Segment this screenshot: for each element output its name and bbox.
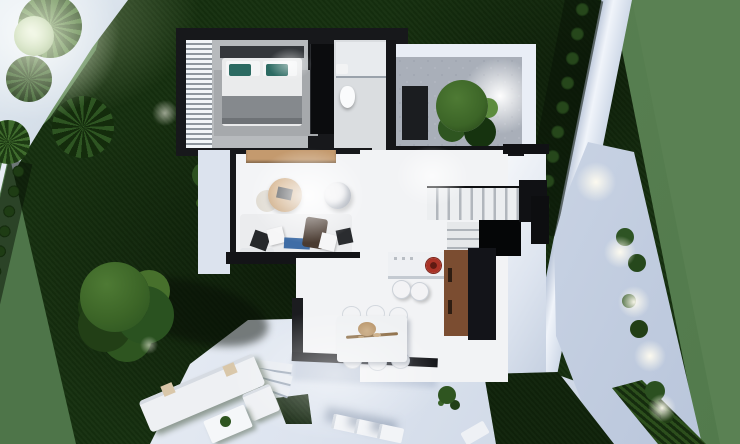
cabinet-handle	[448, 300, 452, 314]
sofa-pillow-black	[336, 228, 354, 246]
cabinet-handle	[448, 268, 452, 282]
bed-headboard	[220, 46, 304, 58]
stairs-upper-flight	[427, 186, 519, 220]
palm-tree-2	[6, 56, 52, 102]
wall-segment-north	[503, 144, 549, 154]
kitchen-tall-cabinet	[444, 250, 468, 336]
toilet	[340, 86, 355, 108]
bed-blanket-edge	[222, 118, 302, 124]
big-tree	[80, 262, 150, 332]
table-centerpiece	[358, 322, 376, 336]
wall-light-3	[618, 286, 650, 318]
bed-pillow-teal	[266, 64, 288, 76]
bathroom-divider-wall	[386, 40, 396, 154]
kitchen-dark-unit	[468, 248, 496, 340]
cooktop	[426, 258, 441, 273]
courtyard-tree	[436, 80, 488, 132]
glass-wall-west	[292, 298, 303, 360]
bed-pillow-teal	[229, 64, 251, 76]
lawn-light-2	[140, 336, 158, 354]
bar-stool	[410, 282, 429, 301]
table-plant	[220, 416, 231, 427]
courtyard-north-walk	[396, 44, 536, 57]
villa-floorplan-render	[0, 0, 740, 444]
wall-light-2	[604, 236, 636, 268]
palm-tree-3	[52, 96, 114, 158]
flowering-bush	[14, 16, 54, 56]
island-knobs	[394, 257, 416, 260]
wall-light-1	[576, 162, 616, 202]
tv-sideboard	[246, 150, 336, 163]
lounger-plant	[438, 386, 456, 404]
bathroom-sink	[336, 64, 348, 74]
lawn-light-1	[152, 100, 178, 126]
wall-light-4	[634, 340, 666, 372]
wall-light-5	[648, 394, 676, 422]
bar-stool	[392, 280, 411, 299]
wardrobe	[310, 44, 335, 134]
armchair	[324, 182, 351, 209]
wall-segment-east	[531, 196, 549, 244]
courtyard-planter	[402, 86, 428, 140]
courtyard-east-walk	[522, 44, 536, 152]
bedroom-louvered-shutters	[186, 40, 212, 148]
